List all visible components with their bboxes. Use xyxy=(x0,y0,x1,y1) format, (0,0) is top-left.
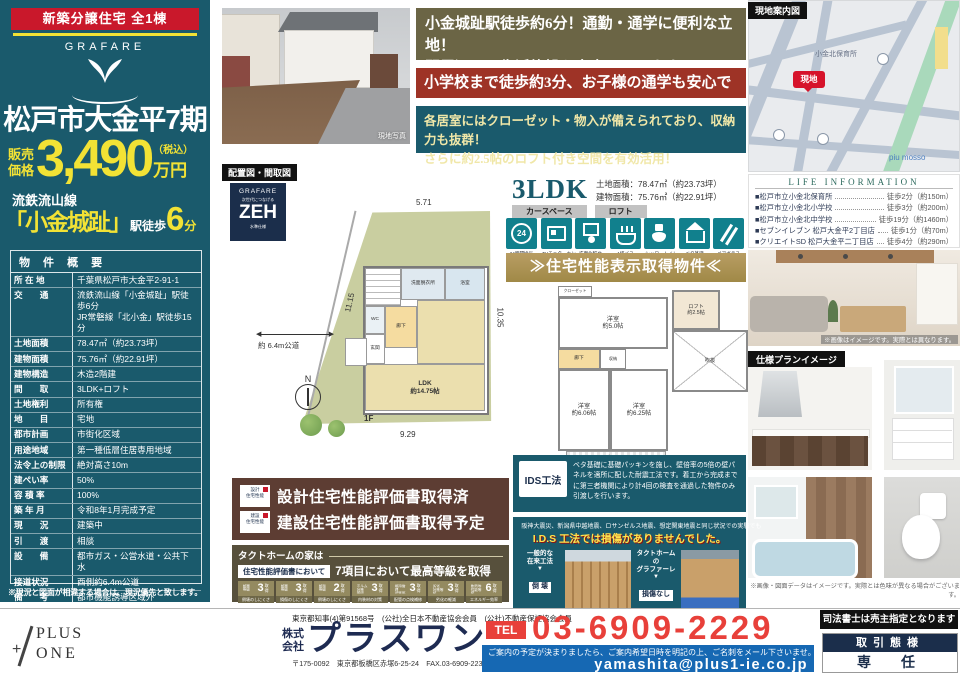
walk-label: 駅徒歩 xyxy=(130,217,166,234)
table-row: 地 目宅地 xyxy=(11,413,201,428)
layout-type-header: 3LDK 土地面積：78.47㎡（約23.73坪） 建物面積：75.76㎡（約2… xyxy=(512,176,722,204)
icon-shower-toilet: シャワートイレ xyxy=(644,218,675,257)
map-building xyxy=(935,27,948,69)
toilet-image xyxy=(884,477,960,578)
price-value: 3,490 xyxy=(36,133,151,185)
first-floor-plan: 洗面脱衣所 浴室 WC 廊下 玄関 LDK 約14.75帖 xyxy=(363,266,489,415)
performance-certificates: 設計 住宅性能 設計住宅性能評価書取得済 建設 住宅性能 建設住宅性能評価書取得… xyxy=(232,478,509,540)
spec-plan-label: 仕様プランイメージ xyxy=(748,351,845,368)
equipment-icons: 2424時間換気 TVモニターホン 洗面化粧台 1坪バス シャワートイレ ベタ基… xyxy=(506,218,744,257)
room-void: 吹抜 xyxy=(672,330,748,392)
table-row: 所 在 地千葉県松戸市大金平2-91-1 xyxy=(11,273,201,288)
grade-badge: 耐風 等級2取得倒壊のしにくさ xyxy=(314,581,350,603)
disclaimer-note: ※現況と図面が相違する場合は、現況優先と致します。 xyxy=(8,587,206,598)
grade-badge: 断熱等 性能等級6取得エネルギー効率 xyxy=(466,581,502,603)
map-marker-icon xyxy=(817,133,829,145)
certificate-row: 設計 住宅性能 設計住宅性能評価書取得済 xyxy=(240,483,501,509)
photo-roof xyxy=(278,12,378,32)
ids-logo: IDS工法 xyxy=(519,461,567,497)
image-cabinet xyxy=(752,436,868,466)
walk-minutes: 6 xyxy=(166,204,184,234)
grade-badge: 劣化 対策等級3取得劣化の軽減 xyxy=(428,581,464,603)
flyer-page: 新築分譲住宅 全1棟 GRAFARE 松戸市大金平7期 販売 価格 3,490 … xyxy=(0,0,960,674)
company-name: 株式 会社 プラスワン xyxy=(282,622,486,656)
table-row: 法令上の制限絶対高さ10m xyxy=(11,458,201,473)
site-photo: 現地写真 xyxy=(222,8,410,144)
living-image-caption: ※画像はイメージです。実際とは異なります。 xyxy=(821,335,958,344)
tree-icon xyxy=(328,420,345,437)
banner-storage: 各居室にはクローゼット・物入が備えられており、収納力も抜群！ さらに約2.5帖の… xyxy=(416,106,746,153)
room-storage: 収納 xyxy=(600,349,626,369)
footer: + PLUS ONE 東京都知事(4)第91568号 (公社)全日本不動産協会会… xyxy=(0,608,960,674)
image-toilet-bowl xyxy=(902,515,940,559)
tag-loft: ロフト xyxy=(595,205,647,218)
performance-banner: ≫住宅性能表示取得物件≪ xyxy=(506,253,746,282)
price-prefix: 販売 価格 xyxy=(8,147,34,178)
tree-icon xyxy=(300,414,322,436)
icon-bath: 1坪バス xyxy=(610,218,641,257)
bathroom-image xyxy=(748,477,872,578)
grade-badge: 維持管理 対策等級3取得配管の点検補修 xyxy=(390,581,426,603)
tact-subheader: 住宅性能評価書において 7項目において最高等級を取得 xyxy=(238,563,503,579)
station-access: 「小金城趾」 駅徒歩 6 分 xyxy=(4,203,196,237)
dim-top: 5.71 xyxy=(416,198,432,207)
contact-box: ご案内の予定が決まりましたら、ご案内希望日時を明記の上、ご名刺をメール下さいませ… xyxy=(482,645,814,672)
grade-badge: ホルム対策 等級3取得内装材の対策 xyxy=(352,581,388,603)
transaction-type-box: 取引態様 専 任 xyxy=(822,633,958,673)
property-overview-table: 物 件 概 要 所 在 地千葉県松戸市大金平2-91-1 交 通流鉄流山線「小金… xyxy=(10,250,202,584)
grade-badges: 耐震 等級3取得倒壊のしにくさ 耐震 等級3取得損傷のしにくさ 耐風 等級2取得… xyxy=(238,581,503,603)
images-disclaimer: ※画像・図面データはイメージです。実際とは色味が異なる場合がございます。 xyxy=(748,581,960,599)
design-cert-icon: 設計 住宅性能 xyxy=(240,485,270,507)
life-information: LIFE INFORMATION ■松戸市立小金北保育所徒歩2分（約150m） … xyxy=(748,174,960,248)
plan-section-label: 配置図・間取図 xyxy=(222,164,297,181)
room-stairs xyxy=(365,268,401,306)
icon-foundation: ベタ基礎 xyxy=(679,218,710,257)
image-sofa xyxy=(750,296,828,332)
icon-vanity: 洗面化粧台 xyxy=(575,218,606,257)
location-map: 小金北保育所 piu mosso 現地 xyxy=(748,0,960,172)
life-info-item: ■松戸市立小金北保育所徒歩2分（約150m） xyxy=(755,191,953,202)
life-info-item: ■セブンイレブン 松戸大金平2丁目店徒歩1分（約70m） xyxy=(755,225,953,236)
feature-tags: カースペース ロフト xyxy=(512,205,647,218)
table-row: 建ぺい率50% xyxy=(11,473,201,488)
comparison-photos: 一般的な 在来工法 ▼ 倒 壊 タクトホームの グラファーレ ▼ 損傷なし xyxy=(518,550,741,614)
judicial-notice: 司法書士は売主指定となります xyxy=(820,610,958,629)
table-row: 用途地域第一種低層住居専用地域 xyxy=(11,443,201,458)
kitchen-image xyxy=(748,367,872,470)
room-bedroom2: 洋室 約6.06帖 xyxy=(558,369,610,451)
tact-home-grades: タクトホームの家は 住宅性能評価書において 7項目において最高等級を取得 耐震 … xyxy=(232,545,509,602)
overview-title: 物 件 概 要 xyxy=(11,251,201,273)
second-floor-plan: クローゼット 洋室 約5.0帖 廊下 収納 洋室 約6.06帖 洋室 約6.25… xyxy=(558,286,668,466)
map-poi-piumosso: piu mosso xyxy=(889,153,925,162)
price-tax-note: （税込） xyxy=(153,141,193,156)
table-row: 容 積 率100% xyxy=(11,489,201,504)
tel-label: TEL xyxy=(486,621,526,639)
plusone-logo: + PLUS ONE xyxy=(10,623,90,669)
station-name: 「小金城趾」 xyxy=(4,203,130,237)
transaction-type-label: 取引態様 xyxy=(823,634,957,652)
price-suffix: （税込） 万円 xyxy=(153,133,193,181)
left-panel: 新築分譲住宅 全1棟 GRAFARE 松戸市大金平7期 販売 価格 3,490 … xyxy=(0,0,210,602)
table-row: 建物面積75.76㎡（約22.91坪） xyxy=(11,352,201,367)
site-plan: 5.71 11.15 10.35 9.29 ◀▶ 約 6.4m公道 N 1F 洗… xyxy=(288,178,510,478)
room-entrance: 玄関 xyxy=(365,334,385,364)
room-bath: 浴室 xyxy=(445,268,485,300)
map-site-pin: 現地 xyxy=(793,71,825,88)
image-range-hood xyxy=(758,371,802,417)
grade-badge: 耐震 等級3取得倒壊のしにくさ xyxy=(238,581,274,603)
brand-name: GRAFARE xyxy=(0,41,210,53)
grafare-caption: タクトホームの グラファーレ ▼ 損傷なし xyxy=(634,550,678,601)
certificate-row: 建設 住宅性能 建設住宅性能評価書取得予定 xyxy=(240,509,501,535)
icon-pair-glass: ペアガラス xyxy=(713,218,744,257)
life-info-item: ■松戸市立小金北小学校徒歩3分（約200m） xyxy=(755,202,953,213)
image-bathtub xyxy=(752,539,858,578)
map-marker-icon xyxy=(773,129,785,141)
banner-station-access: 小金城趾駅徒歩約6分！通勤・通学に便利な立地！ 駅周辺には生活施設も充実していま… xyxy=(416,8,746,60)
table-row: 交 通流鉄流山線「小金城趾」駅徒歩6分 JR常磐線「北小金」駅徒歩15分 xyxy=(11,288,201,337)
living-room-image: ※画像はイメージです。実際とは異なります。 xyxy=(748,250,960,346)
tag-carspace: カースペース xyxy=(512,205,587,218)
grade-badge: 耐震 等級3取得損傷のしにくさ xyxy=(276,581,312,603)
new-build-badge: 新築分譲住宅 全1棟 xyxy=(11,8,199,30)
table-row: 設 備都市ガス・公営水道・公共下水 xyxy=(11,549,201,575)
room-closet: クローゼット xyxy=(558,286,592,297)
walk-unit: 分 xyxy=(184,217,196,234)
table-row: 土地権利所有権 xyxy=(11,398,201,413)
table-row: 引 渡相談 xyxy=(11,534,201,549)
life-info-item: ■松戸市立小金北中学校徒歩19分（約1460m） xyxy=(755,214,953,225)
image-vanity xyxy=(892,418,954,460)
map-marker-icon xyxy=(877,53,889,65)
icon-ventilation: 2424時間換気 xyxy=(506,218,537,257)
tact-header: タクトホームの家は xyxy=(238,548,503,562)
result-no-damage: 損傷なし xyxy=(639,590,673,601)
life-info-title: LIFE INFORMATION xyxy=(755,177,953,189)
zeh-logo: GRAFARE 次世代につなげる ZEH 水準仕様 xyxy=(230,183,286,241)
photo-caption: 現地写真 xyxy=(378,131,406,141)
table-row: 土地面積78.47㎡（約23.73坪） xyxy=(11,337,201,352)
collapse-photo xyxy=(565,550,631,614)
construction-cert-icon: 建設 住宅性能 xyxy=(240,511,270,533)
table-row: 現 況建築中 xyxy=(11,519,201,534)
price-unit: 万円 xyxy=(153,156,193,181)
image-mirror xyxy=(894,366,954,414)
transaction-type-value: 専 任 xyxy=(823,652,957,672)
room-loft: ロフト 約2.5帖 xyxy=(672,290,720,330)
room-bedroom1: 洋室 約5.0帖 xyxy=(558,297,668,349)
image-window xyxy=(916,263,958,325)
room-wc: WC xyxy=(365,306,385,334)
room-ldk-upper xyxy=(417,300,485,364)
result-collapse: 倒 壊 xyxy=(529,582,551,593)
map-section-label: 現地案内図 xyxy=(748,2,807,19)
washbasin-image xyxy=(884,360,960,470)
table-row: 間 取3LDK+ロフト xyxy=(11,382,201,397)
photo-house xyxy=(284,30,374,88)
leaf-icon xyxy=(85,55,125,90)
table-row: 築 年 月令和8年1月完成予定 xyxy=(11,504,201,519)
life-info-item: ■クリエイトSD 松戸大金平二丁目店徒歩4分（約290m） xyxy=(755,236,953,247)
room-ldk: LDK 約14.75帖 xyxy=(365,364,485,411)
email-address: yamashita@plus1-ie.co.jp xyxy=(488,658,808,673)
no-damage-photo xyxy=(681,550,739,614)
room-hall2: 廊下 xyxy=(558,349,600,369)
map-poi-nursery: 小金北保育所 xyxy=(815,49,857,59)
conventional-caption: 一般的な 在来工法 ▼ 倒 壊 xyxy=(518,550,562,593)
image-dining-table xyxy=(840,306,906,332)
table-row: 都市計画市街化区域 xyxy=(11,428,201,443)
area-figures: 土地面積：78.47㎡（約23.73坪） 建物面積：75.76㎡（約22.91坪… xyxy=(596,178,722,204)
dim-right: 10.35 xyxy=(496,307,505,327)
compass-icon: N xyxy=(294,374,322,410)
loft-plan: ロフト 約2.5帖 吹抜 xyxy=(672,290,748,394)
floor1-label: 1F xyxy=(364,414,373,423)
dim-bottom: 9.29 xyxy=(400,430,416,439)
price-block: 販売 価格 3,490 （税込） 万円 xyxy=(8,133,193,185)
layout-type: 3LDK xyxy=(512,176,588,203)
road-width-label: 約 6.4m公道 xyxy=(258,340,299,351)
badge-underline xyxy=(13,33,197,36)
ids-method-box: IDS工法 ベタ基礎に基礎パッキンを施し、壁倍率の5倍の壁パネルを適所に配した耐… xyxy=(513,455,746,512)
icon-tv-monitor: TVモニターホン xyxy=(541,218,572,257)
banner-school: 小学校まで徒歩約3分、お子様の通学も安心です。 xyxy=(416,68,746,98)
entrance-porch xyxy=(345,338,367,366)
ids-earthquake-box: 阪神大震災、新潟県中越地震、ロサンゼルス地震、想定関東地震と同じ状況での実験でも… xyxy=(513,517,746,622)
image-plant xyxy=(828,300,838,322)
image-bath-window xyxy=(754,485,798,519)
room-bedroom3: 洋室 約6.25帖 xyxy=(610,369,668,451)
phone-number: 03-6909-2229 xyxy=(532,609,774,647)
room-washroom: 洗面脱衣所 xyxy=(401,268,445,300)
zeh-brand: GRAFARE xyxy=(230,188,286,195)
road-width-arrow: ◀▶ xyxy=(256,330,334,338)
room-hall: 廊下 xyxy=(385,306,417,348)
table-row: 建物構造木造2階建 xyxy=(11,367,201,382)
